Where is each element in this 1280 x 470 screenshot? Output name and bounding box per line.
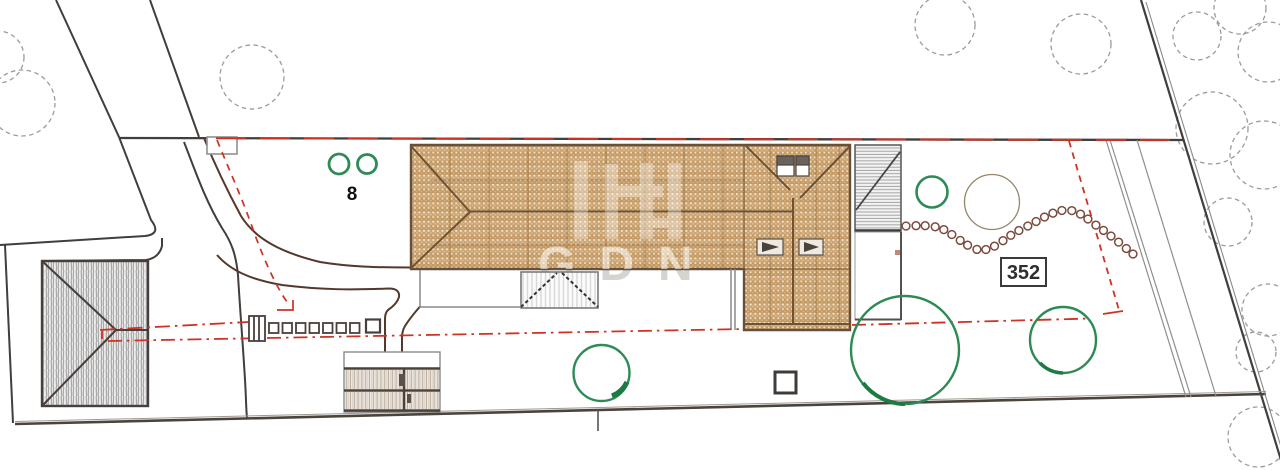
svg-text:352: 352 <box>1007 262 1040 284</box>
svg-text:8: 8 <box>347 184 358 205</box>
